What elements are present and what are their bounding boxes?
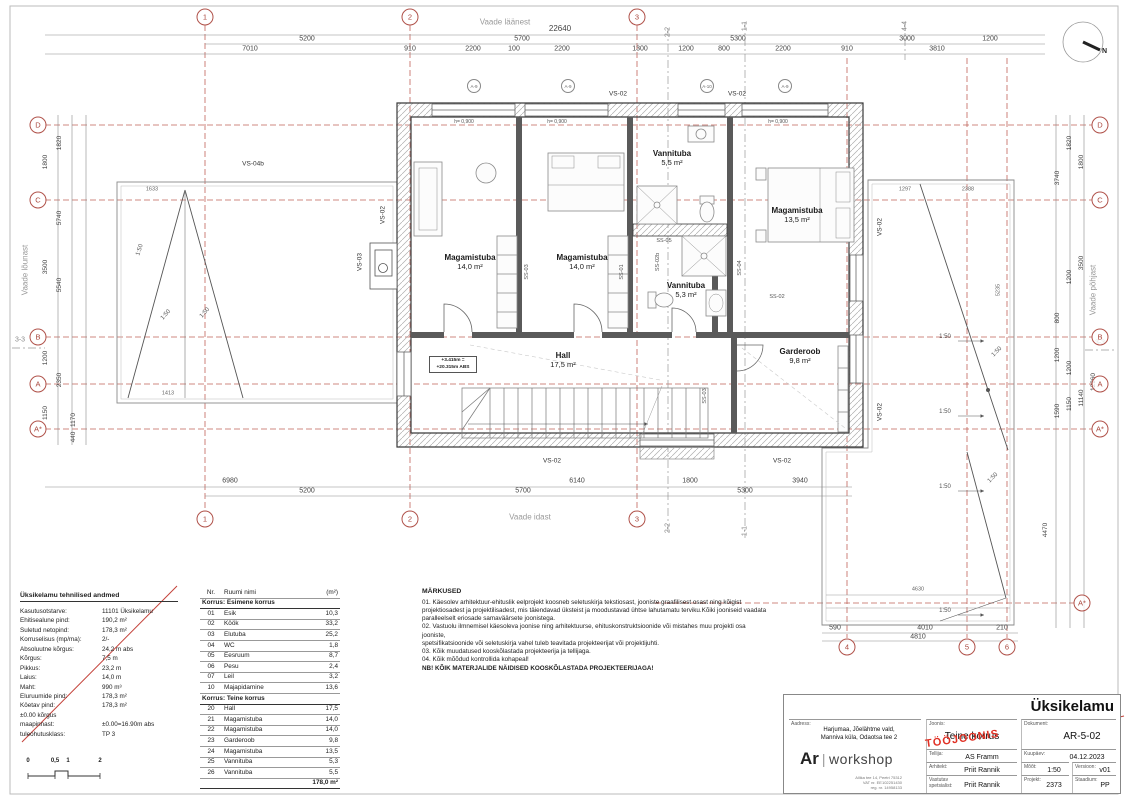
grid-bubble-A-right: A [1092,376,1109,393]
dim: 2350 [57,373,64,387]
slope-label: 1:50 [939,334,951,340]
room-label-bathroom-1: Vannituba5,5 m² [653,149,691,167]
address-cell: Aadress: Harjumaa, Jõelähtme vald, Manni… [789,719,921,750]
technical-data-row: Ehitisealune pind: 190,2 m² [20,616,178,625]
dim: 5300 [730,36,746,43]
technical-data-row: tuleohutusklass: TP 3 [20,730,178,739]
room-name: Pesu [222,662,310,673]
dim: 5700 [514,36,530,43]
dim: 4010 [917,625,933,632]
label-vs-04b: VS-04b [242,161,264,168]
scale-tick-2: 2 [98,758,101,764]
tech-label: tuleohutusklass: [20,730,102,739]
dim: 11140 [1079,389,1086,406]
dokument-cell: Dokument: AR-5-02 [1021,719,1116,750]
tech-value: 23,2 m [102,664,121,673]
technical-data-row: Eluruumide pind: 178,3 m² [20,692,178,701]
scale-tick-1: 1 [66,758,69,764]
dim: 1200 [982,36,998,43]
scale-tick-05: 0,5 [51,758,59,764]
section-label-2-2-bottom: 2-2 [665,523,672,533]
note-line: 02. Vastuolu ilmnemisel käesoleva joonis… [422,623,770,639]
room-table-row: 01 Esik 10,3 [200,609,340,620]
tellija-label: Tellija: [929,751,943,757]
dim: 210 [996,625,1008,632]
tech-value: 178,3 m² [102,626,127,635]
dim: 4630 [912,587,924,593]
room-area: 1,8 [310,640,340,651]
room-nr: 23 [200,736,222,747]
room-area: 14,0 [310,725,340,736]
technical-data-row: ±0.00 kõrgus [20,711,178,720]
room-label-bedroom-2: Magamistuba14,0 m² [556,253,607,271]
window-tag: A-10 [700,79,714,93]
projekt-cell: Projekt: 2373 [1021,775,1069,793]
tech-label: Eluruumide pind: [20,692,102,701]
label-vs-02: VS-02 [728,91,746,98]
room-nr: 25 [200,757,222,768]
grid-bubble-As-right: A* [1092,421,1109,438]
label-ss-04: SS-04 [737,260,743,275]
staircase [462,386,708,440]
label-ss-02: SS-02 [769,294,784,300]
room-area: 5,5 [310,768,340,779]
room-nr: 06 [200,662,222,673]
room-nr: 04 [200,640,222,651]
dim: 1170 [71,413,78,427]
slope-label: 1:50 [939,409,951,415]
tech-label: maapinnast: [20,720,102,729]
room-label-garderoob: Garderoob9,8 m² [780,347,821,365]
moot-value: 1:50 [1047,767,1061,774]
room-table-row: 26 Vannituba 5,5 [200,768,340,779]
dim: 3940 [792,478,808,485]
room-table-section-1: Korrus: Esimene korrus [200,598,340,609]
tech-label: Kasutusotstarve: [20,607,102,616]
room-nr: 22 [200,725,222,736]
view-label-west: Vaade läänest [480,18,531,27]
room-nr: 26 [200,768,222,779]
technical-data-row: Köetav pind: 178,3 m² [20,701,178,710]
room-label-bedroom-3: Magamistuba13,5 m² [771,206,822,224]
chimney [370,243,397,289]
drawing-sheet: 1 2 3 1 2 3 4 5 6 D C B A A* D C B A A* … [0,0,1128,800]
section-label-4-4: 4-4 [902,21,909,31]
section-lines [12,22,1116,538]
section-label-1-1-top: 1-1 [742,21,749,31]
section-label-1-1-bottom: 1-1 [742,526,749,536]
tech-value: 990 m³ [102,683,122,692]
dim: 2388 [962,187,974,193]
dim: 3810 [929,46,945,53]
dim: 910 [841,46,853,53]
note-line: 01. Käesolev arhitektuur-ehituslik eelpr… [422,599,770,607]
logo-separator: | [822,751,826,767]
room-name: Garderoob [222,736,310,747]
technical-data-row: Suletud netopind: 178,3 m² [20,626,178,635]
dim: 1150 [43,406,50,420]
vastutav-value: Priit Rannik [964,782,1000,789]
notes-title: MÄRKUSED [422,588,770,597]
dim: 6980 [222,478,238,485]
grid-bubble-B-left: B [30,329,47,346]
room-name: Leil [222,672,310,683]
room-nr: 07 [200,672,222,683]
dim: 1200 [1067,361,1074,375]
technical-data-row: Laius: 14,0 m [20,673,178,682]
tech-label: Korruselisus (mp/ma): [20,635,102,644]
dim: 5300 [737,488,753,495]
tech-label: Köetav pind: [20,701,102,710]
logo-workshop: workshop [829,751,893,767]
notes-nb: NB! KÕIK MATERJALIDE NÄIDISED KOOSKÕLAST… [422,665,770,673]
dim: 2200 [775,46,791,53]
dim: 6140 [569,478,585,485]
note-line: spetsifikatsioonide või seletuskirja vah… [422,640,770,648]
dim: 1200 [1055,348,1062,362]
room-name: Vannituba [222,768,310,779]
label-ss-02b: SS-02b [655,253,661,271]
arhitekt-label: Arhitekt: [929,764,947,770]
technical-data-row: Kasutusotstarve: 11101 Üksikelamu [20,607,178,616]
dim: 3500 [43,260,50,274]
view-label-east: Vaade idast [509,513,551,522]
arhitekt-value: Priit Rannik [964,767,1000,774]
view-label-north: Vaade põhjast [1089,265,1098,316]
note-line: 04. Kõik mõõdud kontrollida kohapeal! [422,656,770,664]
tech-label: Kõrgus: [20,654,102,663]
dim: 5200 [299,488,315,495]
room-area: 9,8 [310,736,340,747]
dim: 1590 [1055,404,1062,418]
room-schedule-table: Nr. Ruumi nimi (m²) Korrus: Esimene korr… [200,588,340,789]
room-name: Magamistuba [222,725,310,736]
dim: 1200 [678,46,694,53]
joonis-label: Joonis: [929,721,945,727]
north-arrow-icon [1063,22,1103,62]
note-line: 03. Kõik muudatused kooskõlastada projek… [422,648,770,656]
entry-porch [640,447,714,459]
grid-bubble-D-right: D [1092,117,1109,134]
slope-label: 1:50 [939,608,951,614]
label-vs-02: VS-02 [877,403,884,421]
grid-bubble-2-bottom: 2 [402,511,419,528]
tech-value: 190,2 m² [102,616,127,625]
room-nr: 01 [200,609,222,620]
dim: 2200 [554,46,570,53]
dim: 5235 [996,284,1002,296]
label-ss-03: SS-03 [524,264,530,279]
logo-smallprint: Allika tee 14, Peetri 75312 VAT nr. EE10… [844,775,902,791]
address-value-1: Harjumaa, Jõelähtme vald, [823,727,894,733]
note-line: paralleelselt eriosade samaväärsete joon… [422,615,770,623]
technical-data-row: Korruselisus (mp/ma): 2/- [20,635,178,644]
dim: 2200 [465,46,481,53]
dokument-value: AR-5-02 [1063,731,1100,742]
room-name: Vannituba [222,757,310,768]
scale-bar: 0 0,5 1 2 [22,758,112,780]
grid-bubble-A-left: A [30,376,47,393]
staadium-cell: Staadium: PP [1072,775,1116,793]
versioon-value: v01 [1099,767,1110,774]
tech-label: Absoluutne kõrgus: [20,645,102,654]
technical-data-rows: Kasutusotstarve: 11101 Üksikelamu Ehitis… [20,607,178,739]
room-name: Köök [222,619,310,630]
dim: 3000 [899,36,915,43]
section-label-3-3-left: 3-3 [15,337,25,344]
dim: 1200 [1067,270,1074,284]
vastutav-cell: Vastutav spetsialist: Priit Rannik [926,775,1017,793]
window-tag: A-9 [467,79,481,93]
tech-value: 7,5 m [102,654,118,663]
dim: 1800 [1079,155,1086,169]
dim: 5200 [299,36,315,43]
label-vs-02: VS-02 [609,91,627,98]
room-table-row: 20 Hall 17,5 [200,704,340,715]
grid-bubble-1-bottom: 1 [197,511,214,528]
projekt-value: 2373 [1046,782,1062,789]
tellija-cell: Tellija: AS Framm [926,749,1017,763]
address-label: Aadress: [791,721,811,727]
grid-bubble-As-lower: A* [1074,595,1091,612]
room-table-row: 25 Vannituba 5,3 [200,757,340,768]
room-area: 13,6 [310,683,340,694]
tech-label: Laius: [20,673,102,682]
label-vs-03: VS-03 [357,253,364,271]
room-table-row: 10 Majapidamine 13,6 [200,683,340,694]
room-name: Magamistuba [222,746,310,757]
grid-bubble-1-top: 1 [197,9,214,26]
room-nr: 20 [200,704,222,715]
room-table-row: 05 Eesruum 8,7 [200,651,340,662]
section-label-2-2-top: 2-2 [665,27,672,37]
room-nr: 05 [200,651,222,662]
tech-value: ±0.00=16.90m abs [102,720,154,729]
col-nr: Nr. [200,588,222,598]
label-ss-05: SS-05 [656,238,671,244]
room-table-row: 06 Pesu 2,4 [200,662,340,673]
room-name: Magamistuba [222,715,310,726]
window-height-label: h= 0,900 [454,119,474,125]
room-table-row: 23 Garderoob 9,8 [200,736,340,747]
logo-line: reg. nr. 14958133 [844,785,902,790]
arhitekt-cell: Arhitekt: Priit Rannik [926,762,1017,776]
grid-bubble-2-top: 2 [402,9,419,26]
scale-tick-0: 0 [26,758,29,764]
dim: 4470 [1043,523,1050,537]
tech-value: 11101 Üksikelamu [102,607,153,616]
view-label-south: Vaade lõunast [21,245,30,296]
technical-data-row: Absoluutne kõrgus: 24,2 m abs [20,645,178,654]
room-area: 33,2 [310,619,340,630]
dim: 440 [71,432,78,443]
dim: 1800 [682,478,698,485]
room-table-row: 07 Leil 3,2 [200,672,340,683]
room-nr: 03 [200,630,222,641]
room-table-header: Nr. Ruumi nimi (m²) [200,588,340,598]
dim: 1820 [1067,136,1074,150]
furniture [414,126,854,432]
tech-label: ±0.00 kõrgus [20,711,102,720]
room-area: 5,3 [310,757,340,768]
room-name: Eesruum [222,651,310,662]
room-area: 8,7 [310,651,340,662]
dim: 1300 [632,46,648,53]
technical-data-title: Üksikelamu tehnilised andmed [20,592,178,602]
tellija-value: AS Framm [965,754,998,761]
room-name: WC [222,640,310,651]
tech-value: 24,2 m abs [102,645,133,654]
project-title: Üksikelamu [1031,698,1114,715]
tech-label: Ehitisealune pind: [20,616,102,625]
slope-label: 1:50 [939,484,951,490]
dim: 800 [1055,313,1062,324]
staadium-label: Staadium: [1075,777,1098,783]
technical-data-row: Kõrgus: 7,5 m [20,654,178,663]
room-table-row: 03 Elutuba 25,2 [200,630,340,641]
versioon-label: Versioon: [1075,764,1096,770]
room-label-bathroom-2: Vannituba5,3 m² [667,281,705,299]
logo: Ar|workshop [800,749,893,769]
grid-bubble-As-left: A* [30,421,47,438]
grid-bubble-C-right: C [1092,192,1109,209]
room-table-section-2: Korrus: Teine korrus [200,693,340,704]
dim: 1633 [146,187,158,193]
grid-bubble-5: 5 [959,639,976,656]
kuupaev-value: 04.12.2023 [1069,754,1104,761]
tech-value: 178,3 m² [102,692,127,701]
kuupaev-cell: Kuupäev: 04.12.2023 [1021,749,1116,763]
dim: 1820 [57,136,64,150]
label-vs-02: VS-02 [773,458,791,465]
room-name: Elutuba [222,630,310,641]
tech-label: Suletud netopind: [20,626,102,635]
window-height-label: h= 0,900 [768,119,788,125]
dokument-label: Dokument: [1024,721,1048,727]
room-table-row: 22 Magamistuba 14,0 [200,725,340,736]
col-name: Ruumi nimi [222,588,310,598]
grid-bubble-3-top: 3 [629,9,646,26]
dim-top-total: 22640 [549,25,571,33]
room-name: Majapidamine [222,683,310,694]
label-vs-02: VS-02 [543,458,561,465]
room-label-bedroom-1: Magamistuba14,0 m² [444,253,495,271]
projekt-label: Projekt: [1024,777,1041,783]
room-area: 10,3 [310,609,340,620]
dim: 5540 [57,278,64,292]
grid-bubble-B-right: B [1092,329,1109,346]
dim: 1413 [162,391,174,397]
dim: 100 [508,46,520,53]
col-area: (m²) [310,588,340,598]
grid-bubble-4: 4 [839,639,856,656]
dim: 5740 [57,211,64,225]
grid-bubble-6: 6 [999,639,1016,656]
dim: 590 [829,625,841,632]
address-value-2: Manniva küla, Odaotsa tee 2 [821,735,897,741]
notes-block: MÄRKUSED 01. Käesolev arhitektuur-ehitus… [422,588,770,673]
dim: 1150 [1067,397,1074,411]
staadium-value: PP [1100,782,1109,789]
technical-data-row: Pikkus: 23,2 m [20,664,178,673]
label-ss-01: SS-01 [619,264,625,279]
room-nr: 10 [200,683,222,694]
window-height-label: h= 0,900 [547,119,567,125]
kuupaev-label: Kuupäev: [1024,751,1045,757]
label-vs-02: VS-02 [380,206,387,224]
north-letter: N [1102,48,1107,55]
room-table-row: 24 Magamistuba 13,5 [200,746,340,757]
moot-label: Mõõt: [1024,764,1037,770]
tech-value: 14,0 m [102,673,121,682]
technical-data-row: Maht: 990 m³ [20,683,178,692]
tech-value: TP 3 [102,730,115,739]
logo-ar: Ar [800,749,819,768]
room-name: Hall [222,704,310,715]
dim: 1200 [43,351,50,365]
technical-data-row: maapinnast: ±0.00=16.90m abs [20,720,178,729]
tech-label: Maht: [20,683,102,692]
room-area: 13,5 [310,746,340,757]
dim: 7010 [242,46,258,53]
room-area: 3,2 [310,672,340,683]
room-area: 14,0 [310,715,340,726]
room-area: 17,5 [310,704,340,715]
grid-bubble-D-left: D [30,117,47,134]
left-roof [117,182,397,403]
room-table-total: 178,0 m² [200,778,340,789]
room-label-hall: Hall17,5 m² [550,351,575,369]
room-name: Esik [222,609,310,620]
room-table-row: 21 Magamistuba 14,0 [200,715,340,726]
dim: 4810 [910,634,926,641]
versioon-cell: Versioon: v01 [1072,762,1116,776]
notes-lines: 01. Käesolev arhitektuur-ehituslik eelpr… [422,599,770,664]
technical-data-table: Üksikelamu tehnilised andmed Kasutusotst… [20,592,178,739]
room-area: 25,2 [310,630,340,641]
note-line: projektiosadest ja projektilisadest, mis… [422,607,770,615]
dim: 1297 [899,187,911,193]
room-nr: 02 [200,619,222,630]
grid-bubble-C-left: C [30,192,47,209]
room-table-row: 02 Köök 33,2 [200,619,340,630]
vastutav-label-2: spetsialist: [929,783,952,789]
room-nr: 24 [200,746,222,757]
dim: 3740 [1055,171,1062,185]
label-ss-03: SS-03 [702,388,708,403]
moot-cell: Mõõt: 1:50 [1021,762,1069,776]
window-tag: A-9 [778,79,792,93]
tech-value: 2/- [102,635,109,644]
grid-bubble-3-bottom: 3 [629,511,646,528]
label-vs-02: VS-02 [877,218,884,236]
room-nr: 21 [200,715,222,726]
window-tag: A-9 [561,79,575,93]
tech-value: 178,3 m² [102,701,127,710]
dim: 910 [404,46,416,53]
dim: 3500 [1079,256,1086,270]
tech-label: Pikkus: [20,664,102,673]
dim: 1800 [43,155,50,169]
room-area: 2,4 [310,662,340,673]
room-table-row: 04 WC 1,8 [200,640,340,651]
dim: 800 [718,46,730,53]
elevation-marker: +3.415m =+20.315m ABS [429,356,477,373]
dim: 5700 [515,488,531,495]
